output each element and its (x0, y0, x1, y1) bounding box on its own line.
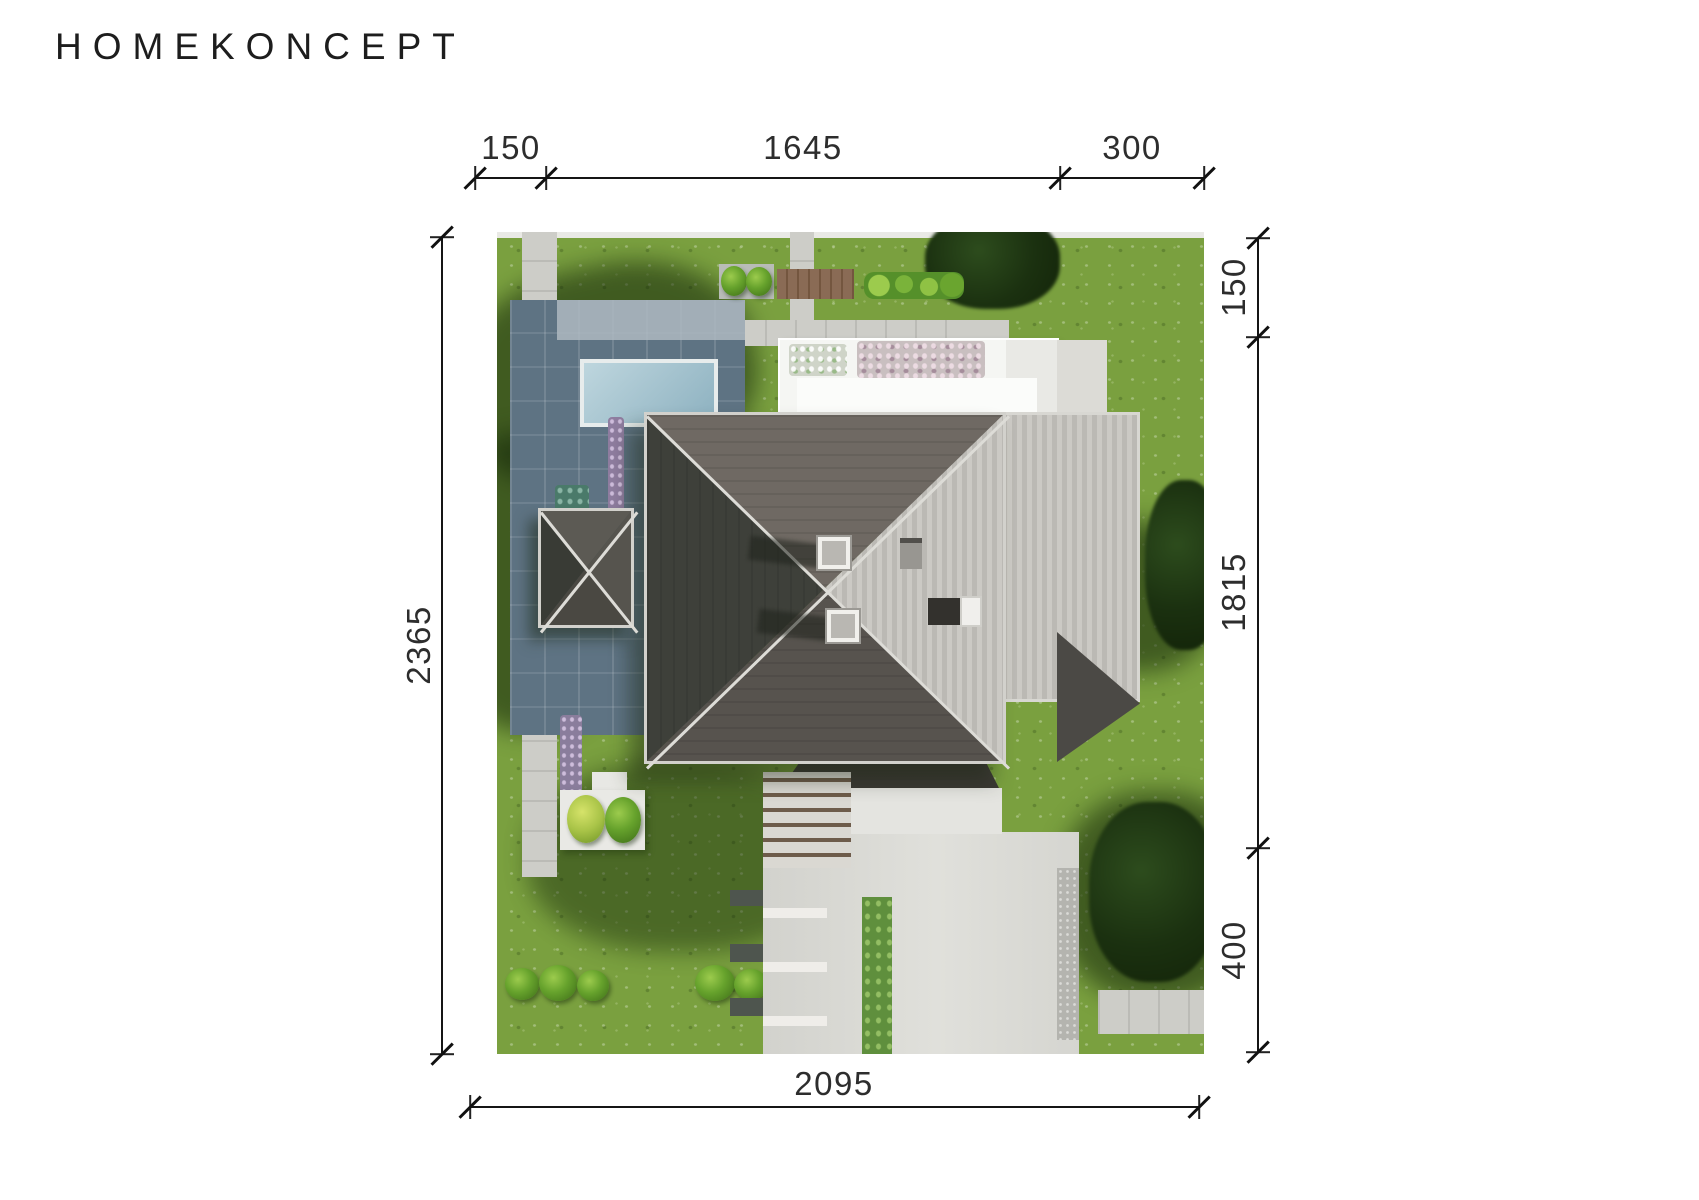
skylight-box-2 (827, 610, 859, 642)
driveway-paver-strip-3 (763, 1016, 827, 1026)
tree-canopy-bottom-right (1089, 802, 1204, 982)
purple-flower-bed-upper (608, 417, 624, 522)
dim-left-2365: 2365 (400, 605, 438, 684)
bush-bottom-left-1 (505, 968, 539, 1000)
dim-top-1645: 1645 (763, 129, 842, 167)
top-planter-bush-2 (746, 267, 772, 296)
aerial-site-view (497, 232, 1204, 1054)
east-skylight (900, 538, 922, 569)
homekoncept-logo: HOMEKONCEPT (55, 26, 466, 68)
driveway-paver-strip-2 (763, 962, 827, 972)
top-planter-bush-1 (721, 266, 747, 296)
patio-sunlit-strip (557, 300, 745, 340)
bush-bottom-left-4 (695, 965, 735, 1001)
stepping-stone-3 (730, 998, 764, 1016)
wooden-deck (777, 269, 854, 299)
skylight-box-1 (818, 537, 850, 569)
chimney-cap (960, 596, 982, 627)
street-edge (497, 232, 1204, 238)
purple-flower-bed-lower (560, 715, 582, 793)
entrance-pergola (763, 772, 851, 868)
dim-top-300: 300 (1102, 129, 1162, 167)
terrace-flower-box-white (789, 344, 847, 376)
tree-canopy-right (1145, 480, 1204, 650)
chimney-dark (928, 598, 960, 625)
flat-roof-bright-panel (797, 378, 1037, 416)
dim-right-400: 400 (1215, 920, 1253, 980)
terrace-flower-box-pink (857, 341, 985, 378)
driveway-paver-strip-1 (763, 908, 827, 918)
stepping-stone-2 (730, 944, 764, 962)
dim-top-150: 150 (481, 129, 541, 167)
bush-bottom-left-2 (539, 965, 577, 1001)
driveway-gravel-edge (1057, 868, 1079, 1040)
annex-roof (538, 508, 634, 628)
bottom-right-path (1098, 990, 1204, 1034)
white-planter-bush-1 (567, 795, 605, 843)
plot-plan-page: HOMEKONCEPT (0, 0, 1699, 1200)
dim-right-150: 150 (1215, 257, 1253, 317)
driveway-planting-strip (862, 897, 892, 1054)
stepping-stone-1 (730, 890, 764, 906)
white-planter-bush-2 (605, 797, 641, 843)
hedge-row (864, 272, 964, 299)
dim-right-1815: 1815 (1215, 552, 1253, 631)
main-roof (644, 412, 1006, 764)
bush-bottom-left-3 (577, 970, 609, 1001)
dim-bottom-2095: 2095 (794, 1065, 873, 1103)
